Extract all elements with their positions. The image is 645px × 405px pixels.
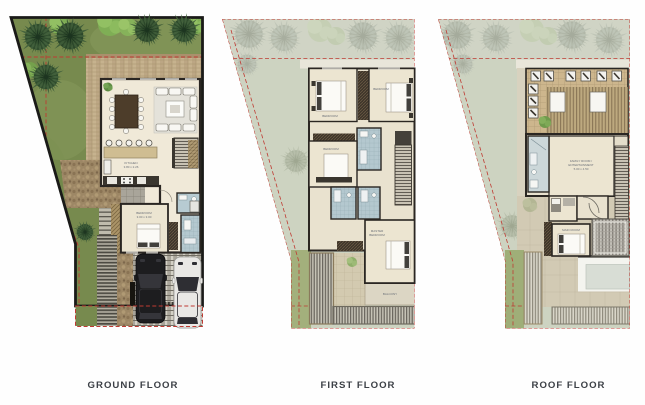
svg-text:GROUND FLOOR: GROUND FLOOR [88,380,179,391]
svg-text:5.00 x 4.50: 5.00 x 4.50 [574,167,589,171]
svg-text:BEDROOM: BEDROOM [369,233,385,237]
svg-text:BALCONY: BALCONY [383,292,397,296]
svg-text:3.00 x 3.00: 3.00 x 3.00 [137,215,152,219]
svg-text:BEDROOM: BEDROOM [323,147,339,151]
svg-text:FIRST FLOOR: FIRST FLOOR [321,380,396,391]
svg-text:MAID ROOM: MAID ROOM [562,228,580,232]
svg-text:BEDROOM: BEDROOM [322,114,338,118]
svg-text:BEDROOM: BEDROOM [373,87,389,91]
svg-text:ROOF FLOOR: ROOF FLOOR [532,380,606,391]
svg-text:3.80 x 2.26: 3.80 x 2.26 [124,165,139,169]
